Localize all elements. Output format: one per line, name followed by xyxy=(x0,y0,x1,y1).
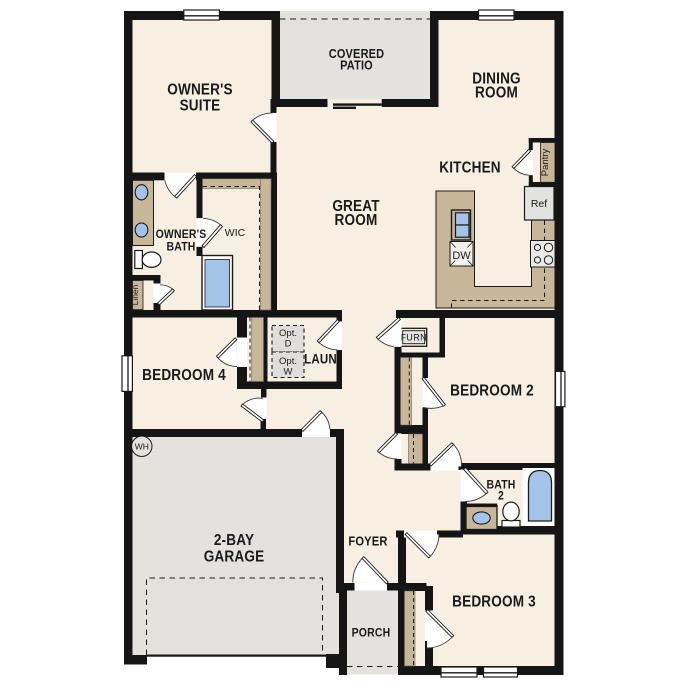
svg-text:2-BAY: 2-BAY xyxy=(214,532,254,549)
svg-text:BEDROOM 3: BEDROOM 3 xyxy=(452,594,536,611)
svg-text:Pantry: Pantry xyxy=(540,149,551,177)
svg-text:FURN: FURN xyxy=(400,333,427,343)
svg-text:OWNER'S: OWNER'S xyxy=(156,228,207,241)
svg-text:WIC: WIC xyxy=(225,227,246,239)
svg-text:Opt.: Opt. xyxy=(279,356,297,367)
svg-text:PATIO: PATIO xyxy=(340,58,373,73)
svg-text:2: 2 xyxy=(498,490,504,503)
svg-text:ROOM: ROOM xyxy=(475,85,518,102)
svg-text:OWNER'S: OWNER'S xyxy=(167,82,233,99)
svg-text:SUITE: SUITE xyxy=(180,98,221,115)
svg-text:ROOM: ROOM xyxy=(335,212,378,229)
svg-text:GARAGE: GARAGE xyxy=(204,549,265,566)
svg-text:D: D xyxy=(285,339,292,350)
svg-text:Ref: Ref xyxy=(531,198,547,210)
svg-text:BATH: BATH xyxy=(166,241,195,254)
svg-text:WH: WH xyxy=(135,442,149,452)
svg-text:LAUN: LAUN xyxy=(304,352,337,367)
svg-text:W: W xyxy=(284,367,293,378)
svg-text:Linen: Linen xyxy=(130,284,140,305)
svg-text:BEDROOM 2: BEDROOM 2 xyxy=(450,383,534,400)
svg-text:Opt.: Opt. xyxy=(279,328,297,339)
svg-text:PORCH: PORCH xyxy=(352,627,391,640)
svg-text:BEDROOM 4: BEDROOM 4 xyxy=(142,367,226,384)
svg-text:FOYER: FOYER xyxy=(348,534,387,549)
svg-text:DW: DW xyxy=(452,250,471,262)
svg-text:KITCHEN: KITCHEN xyxy=(439,160,501,177)
